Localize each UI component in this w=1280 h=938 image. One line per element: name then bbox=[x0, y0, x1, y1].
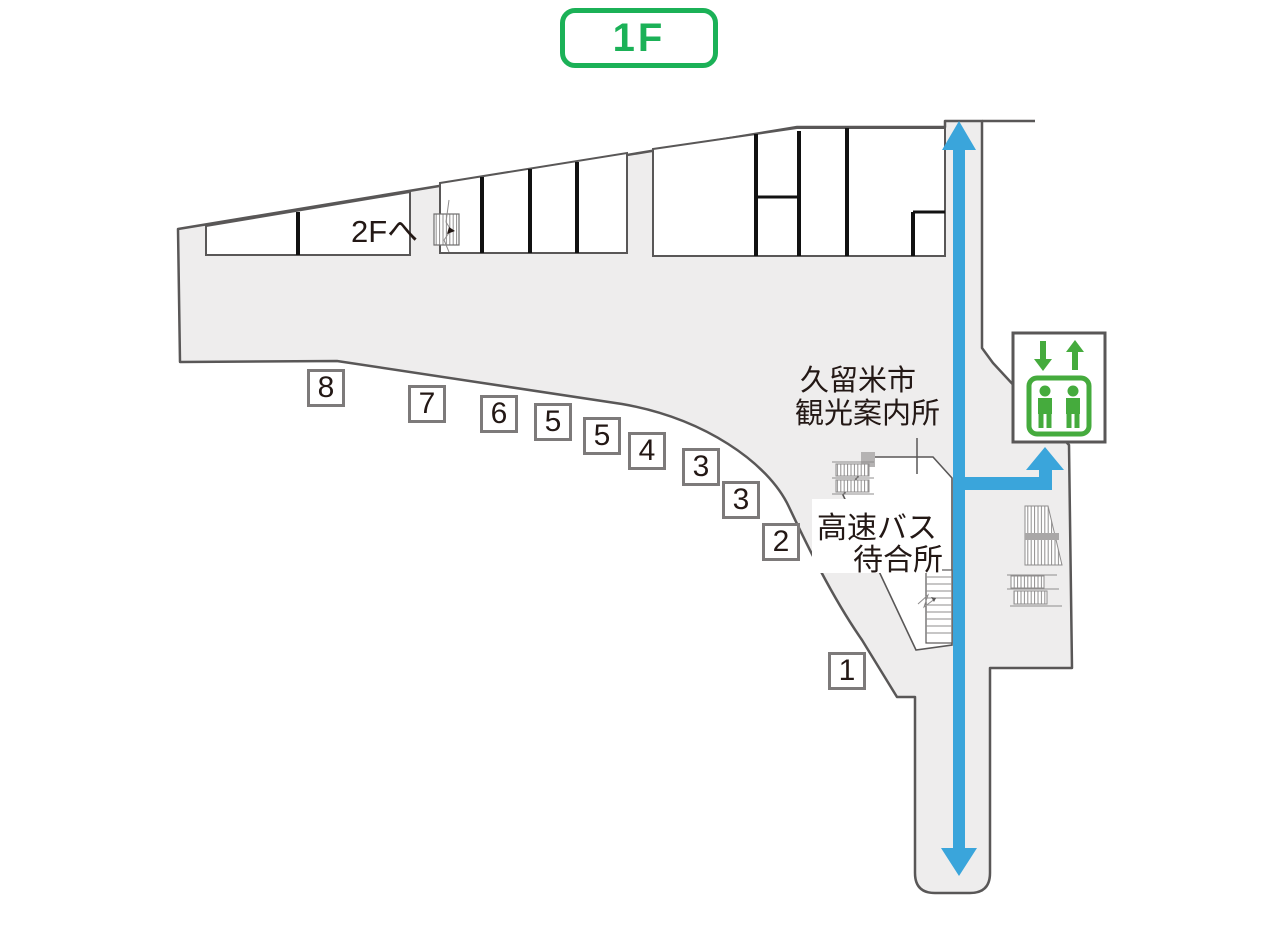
bus-waiting-label-line2: 待合所 bbox=[853, 535, 943, 579]
bus-stop-8: 8 bbox=[307, 369, 345, 407]
to-2f-label: 2Fへ bbox=[351, 206, 418, 251]
floor-map-1f: 1F 2Fへ 久留米市 観光案内所 高速バス 待合所 8 7 6 5 5 4 3… bbox=[0, 0, 1280, 938]
floor-badge: 1F bbox=[560, 8, 718, 68]
bus-stop-3a: 3 bbox=[682, 448, 720, 486]
elevator-icon bbox=[1013, 333, 1105, 442]
upper-buildings bbox=[206, 128, 945, 256]
bus-stop-6: 6 bbox=[480, 395, 518, 433]
bus-stop-1: 1 bbox=[828, 652, 866, 690]
bus-stop-3b: 3 bbox=[722, 481, 760, 519]
room-middle bbox=[440, 153, 627, 253]
bus-stop-5b: 5 bbox=[583, 417, 621, 455]
building-escalator-icon bbox=[832, 462, 874, 494]
info-center-label-line1: 久留米市 bbox=[800, 366, 916, 398]
bus-stop-4: 4 bbox=[628, 432, 666, 470]
bus-stop-2: 2 bbox=[762, 523, 800, 561]
bus-stop-7: 7 bbox=[408, 385, 446, 423]
info-center-label-line2: 観光案内所 bbox=[795, 399, 940, 431]
bus-stop-5a: 5 bbox=[534, 403, 572, 441]
